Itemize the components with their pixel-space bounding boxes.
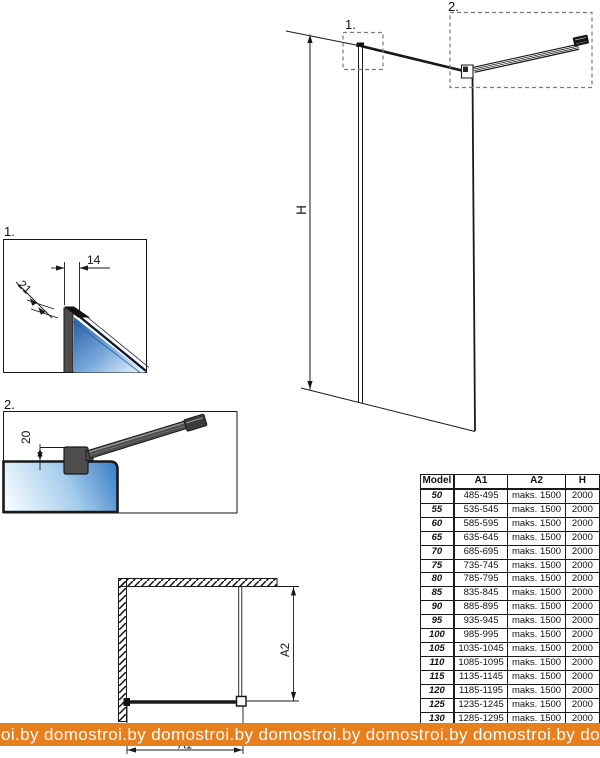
support-bar — [474, 35, 590, 73]
cell-a2: maks. 1500 — [508, 684, 565, 698]
cell-a2: maks. 1500 — [508, 642, 565, 656]
header-a2: A2 — [508, 475, 565, 490]
cell-a2: maks. 1500 — [508, 573, 565, 587]
dim-label-a2: A2 — [280, 643, 292, 657]
table-row: 1151135-1145maks. 15002000 — [421, 670, 600, 684]
technical-drawing-page: H 1. 2. 1. 14 — [0, 0, 600, 758]
detail-2-label: 2. — [4, 397, 15, 412]
elevation-callout-1-label: 1. — [345, 17, 356, 32]
cell-model: 80 — [421, 573, 454, 587]
detail-1-label: 1. — [4, 224, 15, 239]
cell-model: 115 — [421, 670, 454, 684]
cell-a2: maks. 1500 — [508, 531, 565, 545]
cell-model: 110 — [421, 656, 454, 670]
table-row: 1051035-1045maks. 15002000 — [421, 642, 600, 656]
cell-a1: 1035-1045 — [454, 642, 508, 656]
spec-table-header-row: Model A1 A2 H — [421, 475, 600, 490]
table-row: 100985-995maks. 15002000 — [421, 629, 600, 643]
cell-a1: 935-945 — [454, 615, 508, 629]
table-row: 50485-495maks. 15002000 — [421, 489, 600, 503]
cell-a1: 1085-1095 — [454, 656, 508, 670]
cell-a1: 535-545 — [454, 503, 508, 517]
cell-a1: 685-695 — [454, 545, 508, 559]
cell-h: 2000 — [565, 684, 599, 698]
dim-label-14: 14 — [87, 253, 101, 267]
cell-h: 2000 — [565, 531, 599, 545]
elevation-view: H 1. 2. — [286, 0, 592, 432]
watermark-text: oi.by domostroi.by domostroi.by domostro… — [1, 725, 600, 744]
table-row: 80785-795maks. 15002000 — [421, 573, 600, 587]
table-row: 95935-945maks. 15002000 — [421, 615, 600, 629]
cell-a2: maks. 1500 — [508, 629, 565, 643]
cell-h: 2000 — [565, 517, 599, 531]
plan-bar-joint — [237, 697, 247, 707]
detail-2-view: 2. 20 — [4, 397, 238, 513]
cell-a2: maks. 1500 — [508, 670, 565, 684]
cell-model: 100 — [421, 629, 454, 643]
table-row: 75735-745maks. 15002000 — [421, 559, 600, 573]
cell-a1: 635-645 — [454, 531, 508, 545]
spec-table-body: 50485-495maks. 1500200055535-545maks. 15… — [421, 489, 600, 726]
table-row: 1201185-1195maks. 15002000 — [421, 684, 600, 698]
table-row: 90885-895maks. 15002000 — [421, 601, 600, 615]
cell-h: 2000 — [565, 587, 599, 601]
dimension-A2: A2 — [247, 587, 299, 702]
cell-h: 2000 — [565, 615, 599, 629]
cell-h: 2000 — [565, 503, 599, 517]
cell-model: 120 — [421, 684, 454, 698]
cell-a2: maks. 1500 — [508, 503, 565, 517]
header-h: H — [565, 475, 599, 490]
dim-label-20: 20 — [19, 430, 33, 444]
detail-1-view: 1. 14 21 — [4, 224, 150, 373]
dim-label-h: H — [294, 205, 309, 215]
cell-a2: maks. 1500 — [508, 587, 565, 601]
header-model: Model — [421, 475, 454, 490]
glass-right-edge — [473, 75, 476, 431]
detail-2-glass — [4, 462, 118, 513]
cell-model: 105 — [421, 642, 454, 656]
plan-top-wall — [119, 579, 278, 587]
bar-wall-mount — [573, 35, 590, 47]
cell-a2: maks. 1500 — [508, 559, 565, 573]
cell-a1: 735-745 — [454, 559, 508, 573]
cell-a1: 985-995 — [454, 629, 508, 643]
cell-a2: maks. 1500 — [508, 615, 565, 629]
dimension-H: H — [294, 35, 310, 390]
bar-clamp — [462, 65, 474, 78]
cell-h: 2000 — [565, 559, 599, 573]
cell-a2: maks. 1500 — [508, 517, 565, 531]
cell-a1: 885-895 — [454, 601, 508, 615]
cell-model: 95 — [421, 615, 454, 629]
cell-a2: maks. 1500 — [508, 489, 565, 503]
cell-model: 55 — [421, 503, 454, 517]
cell-h: 2000 — [565, 670, 599, 684]
cell-model: 60 — [421, 517, 454, 531]
cell-a2: maks. 1500 — [508, 601, 565, 615]
header-a1: A1 — [454, 475, 508, 490]
cell-h: 2000 — [565, 698, 599, 712]
watermark-band: oi.by domostroi.by domostroi.by domostro… — [0, 723, 600, 746]
cell-a1: 485-495 — [454, 489, 508, 503]
cell-a1: 585-595 — [454, 517, 508, 531]
table-row: 1251235-1245maks. 15002000 — [421, 698, 600, 712]
cell-model: 125 — [421, 698, 454, 712]
cell-h: 2000 — [565, 489, 599, 503]
cell-h: 2000 — [565, 656, 599, 670]
cell-a2: maks. 1500 — [508, 545, 565, 559]
cell-a2: maks. 1500 — [508, 698, 565, 712]
cell-h: 2000 — [565, 601, 599, 615]
spec-table: Model A1 A2 H 50485-495maks. 15002000555… — [420, 474, 600, 726]
cell-model: 65 — [421, 531, 454, 545]
elevation-callout-2-label: 2. — [448, 0, 459, 14]
table-row: 70685-695maks. 15002000 — [421, 545, 600, 559]
cell-h: 2000 — [565, 642, 599, 656]
cell-model: 70 — [421, 545, 454, 559]
cell-model: 50 — [421, 489, 454, 503]
cell-h: 2000 — [565, 629, 599, 643]
cell-a1: 1135-1145 — [454, 670, 508, 684]
table-row: 1101085-1095maks. 15002000 — [421, 656, 600, 670]
cell-a1: 1185-1195 — [454, 684, 508, 698]
cell-a2: maks. 1500 — [508, 656, 565, 670]
cell-h: 2000 — [565, 573, 599, 587]
cell-a1: 1235-1245 — [454, 698, 508, 712]
cell-model: 75 — [421, 559, 454, 573]
table-row: 85835-845maks. 15002000 — [421, 587, 600, 601]
table-row: 60585-595maks. 15002000 — [421, 517, 600, 531]
cell-model: 85 — [421, 587, 454, 601]
table-row: 65635-645maks. 15002000 — [421, 531, 600, 545]
table-row: 55535-545maks. 15002000 — [421, 503, 600, 517]
cell-a1: 835-845 — [454, 587, 508, 601]
cell-h: 2000 — [565, 545, 599, 559]
cell-a1: 785-795 — [454, 573, 508, 587]
plan-wall-profile — [124, 698, 131, 706]
cell-model: 90 — [421, 601, 454, 615]
